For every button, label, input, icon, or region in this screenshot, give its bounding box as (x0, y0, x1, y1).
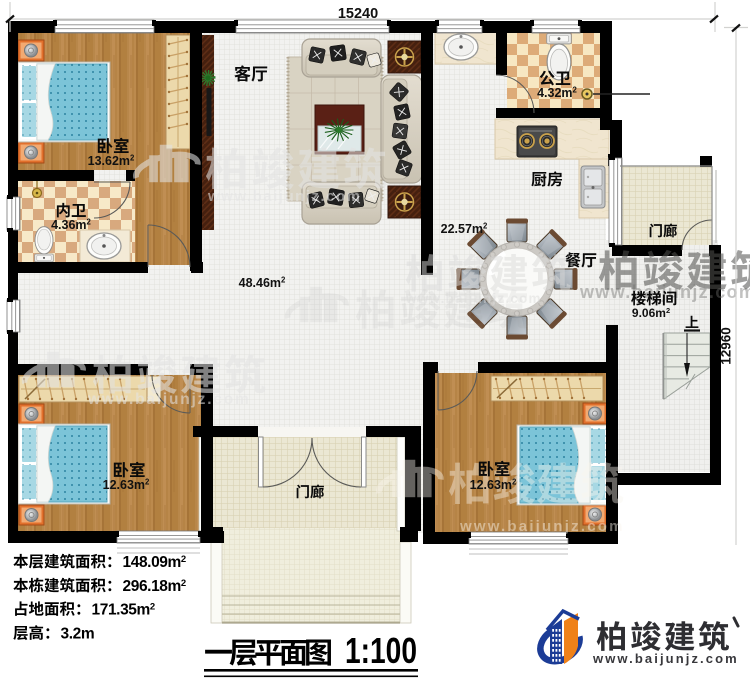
svg-text:www.baijunjz.com: www.baijunjz.com (405, 291, 542, 306)
svg-text:4.32m2: 4.32m2 (537, 86, 577, 100)
svg-text:www.baijunjz.com: www.baijunjz.com (459, 518, 625, 535)
svg-text:www.baijunjz.com: www.baijunjz.com (207, 188, 361, 205)
svg-text:13.62m2: 13.62m2 (88, 154, 135, 168)
svg-text:22.57m2: 22.57m2 (441, 222, 488, 236)
svg-text:www.baijunjz.com: www.baijunjz.com (592, 651, 739, 666)
svg-text:171.35m2: 171.35m2 (92, 602, 155, 619)
svg-text:12.63m2: 12.63m2 (470, 478, 517, 492)
svg-text:15240: 15240 (338, 6, 378, 22)
svg-text:148.09m2: 148.09m2 (123, 554, 186, 571)
svg-text:12.63m2: 12.63m2 (103, 478, 150, 492)
svg-text:9.06m2: 9.06m2 (632, 306, 670, 320)
svg-text:3.2m: 3.2m (61, 626, 95, 643)
svg-text:www.baijunjz.com: www.baijunjz.com (87, 391, 251, 408)
svg-text:4.36m2: 4.36m2 (51, 218, 91, 232)
svg-text:296.18m2: 296.18m2 (123, 578, 186, 595)
svg-text:1:100: 1:100 (345, 630, 417, 671)
svg-text:12960: 12960 (719, 327, 734, 365)
svg-text:48.46m2: 48.46m2 (239, 276, 286, 290)
